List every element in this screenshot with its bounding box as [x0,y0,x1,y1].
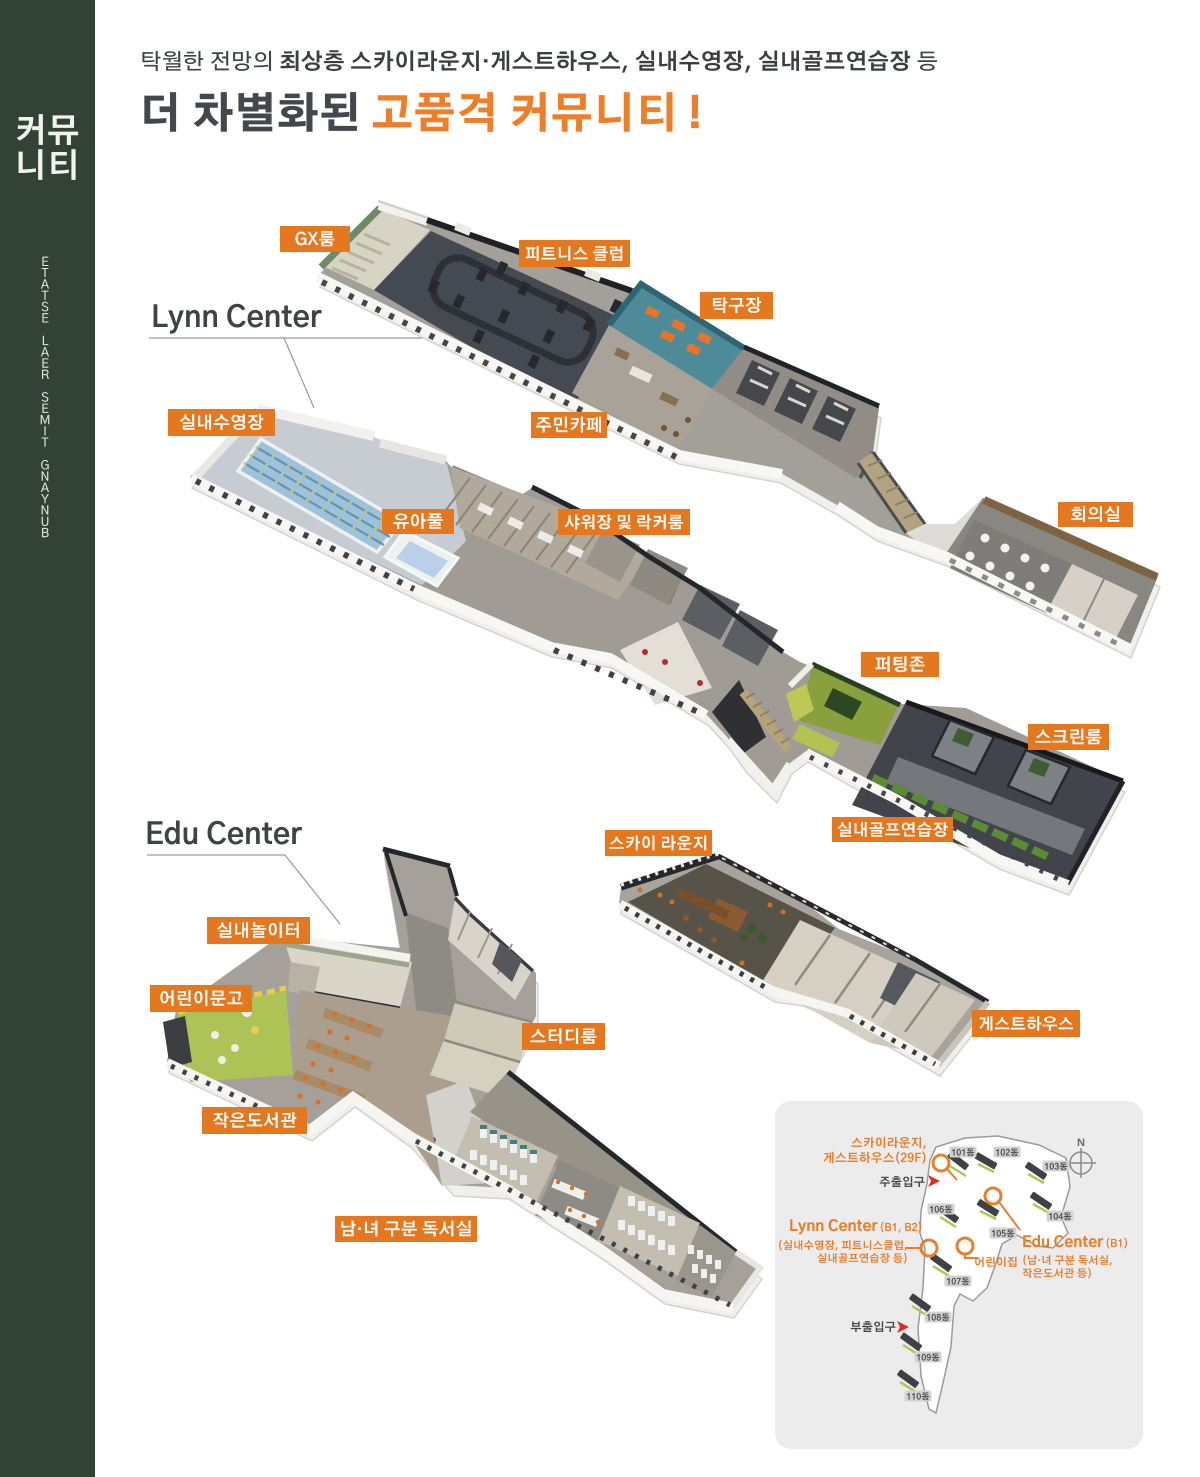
svg-text:N: N [1077,1137,1085,1149]
